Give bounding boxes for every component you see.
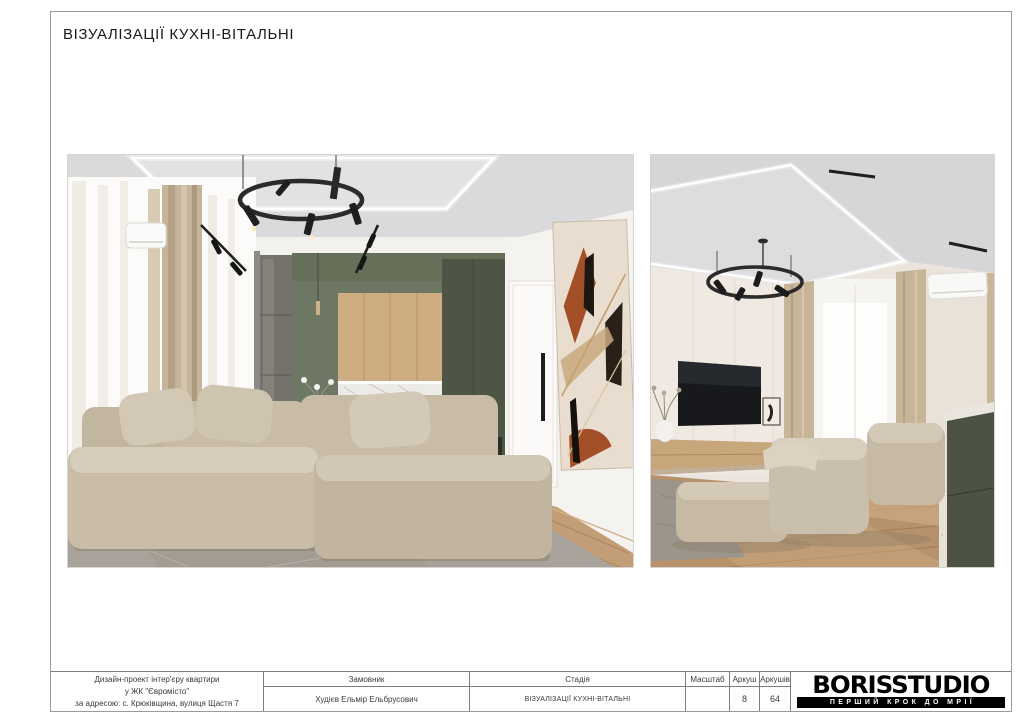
scale-value [686, 687, 729, 711]
scale-cell: Масштаб [685, 672, 729, 711]
sheets-total-cell: Аркушів 64 [759, 672, 790, 711]
sheet-number-value: 8 [730, 687, 759, 711]
stage-header: Стадія [470, 672, 685, 687]
studio-logo-name: BORISSTUDIO [812, 674, 989, 697]
wall-artwork [553, 220, 633, 470]
stage-cell: Стадія ВІЗУАЛІЗАЦІЇ КУХНІ-ВІТАЛЬНІ [469, 672, 685, 711]
air-conditioner [927, 271, 987, 299]
customer-cell: Замовник Худієв Ельмір Ельбрусович [263, 672, 469, 711]
air-conditioner [126, 223, 166, 248]
sheets-total-header: Аркушів [760, 672, 790, 687]
customer-value: Худієв Ельмір Ельбрусович [264, 687, 469, 711]
customer-header: Замовник [264, 672, 469, 687]
scale-header: Масштаб [686, 672, 729, 687]
sheets-total-value: 64 [760, 687, 790, 711]
sofa [68, 383, 552, 561]
project-line-2: у ЖК "Євромісто" [125, 686, 189, 698]
project-line-3: за адресою: с. Крюківщина, вулиця Щастя … [75, 698, 239, 710]
sheet-number-cell: Аркуш 8 [729, 672, 759, 711]
project-line-1: Дизайн-проект інтер'єру квартири [94, 674, 219, 686]
studio-logo: BORISSTUDIO ПЕРШИЙ КРОК ДО МРІЇ [790, 672, 1011, 711]
tv [678, 361, 761, 426]
title-block: Дизайн-проект інтер'єру квартири у ЖК "Є… [51, 671, 1011, 711]
render-living-tv [650, 154, 995, 568]
shelf-art-frame [763, 398, 780, 425]
sheet-frame: ВІЗУАЛІЗАЦІЇ КУХНІ-ВІТАЛЬНІ [50, 11, 1012, 712]
stage-value: ВІЗУАЛІЗАЦІЇ КУХНІ-ВІТАЛЬНІ [470, 687, 685, 711]
kitchen-island [939, 402, 994, 567]
render-kitchen-living [67, 154, 634, 568]
page-title: ВІЗУАЛІЗАЦІЇ КУХНІ-ВІТАЛЬНІ [63, 26, 294, 43]
project-description: Дизайн-проект інтер'єру квартири у ЖК "Є… [51, 672, 263, 711]
sheet-number-header: Аркуш [730, 672, 759, 687]
